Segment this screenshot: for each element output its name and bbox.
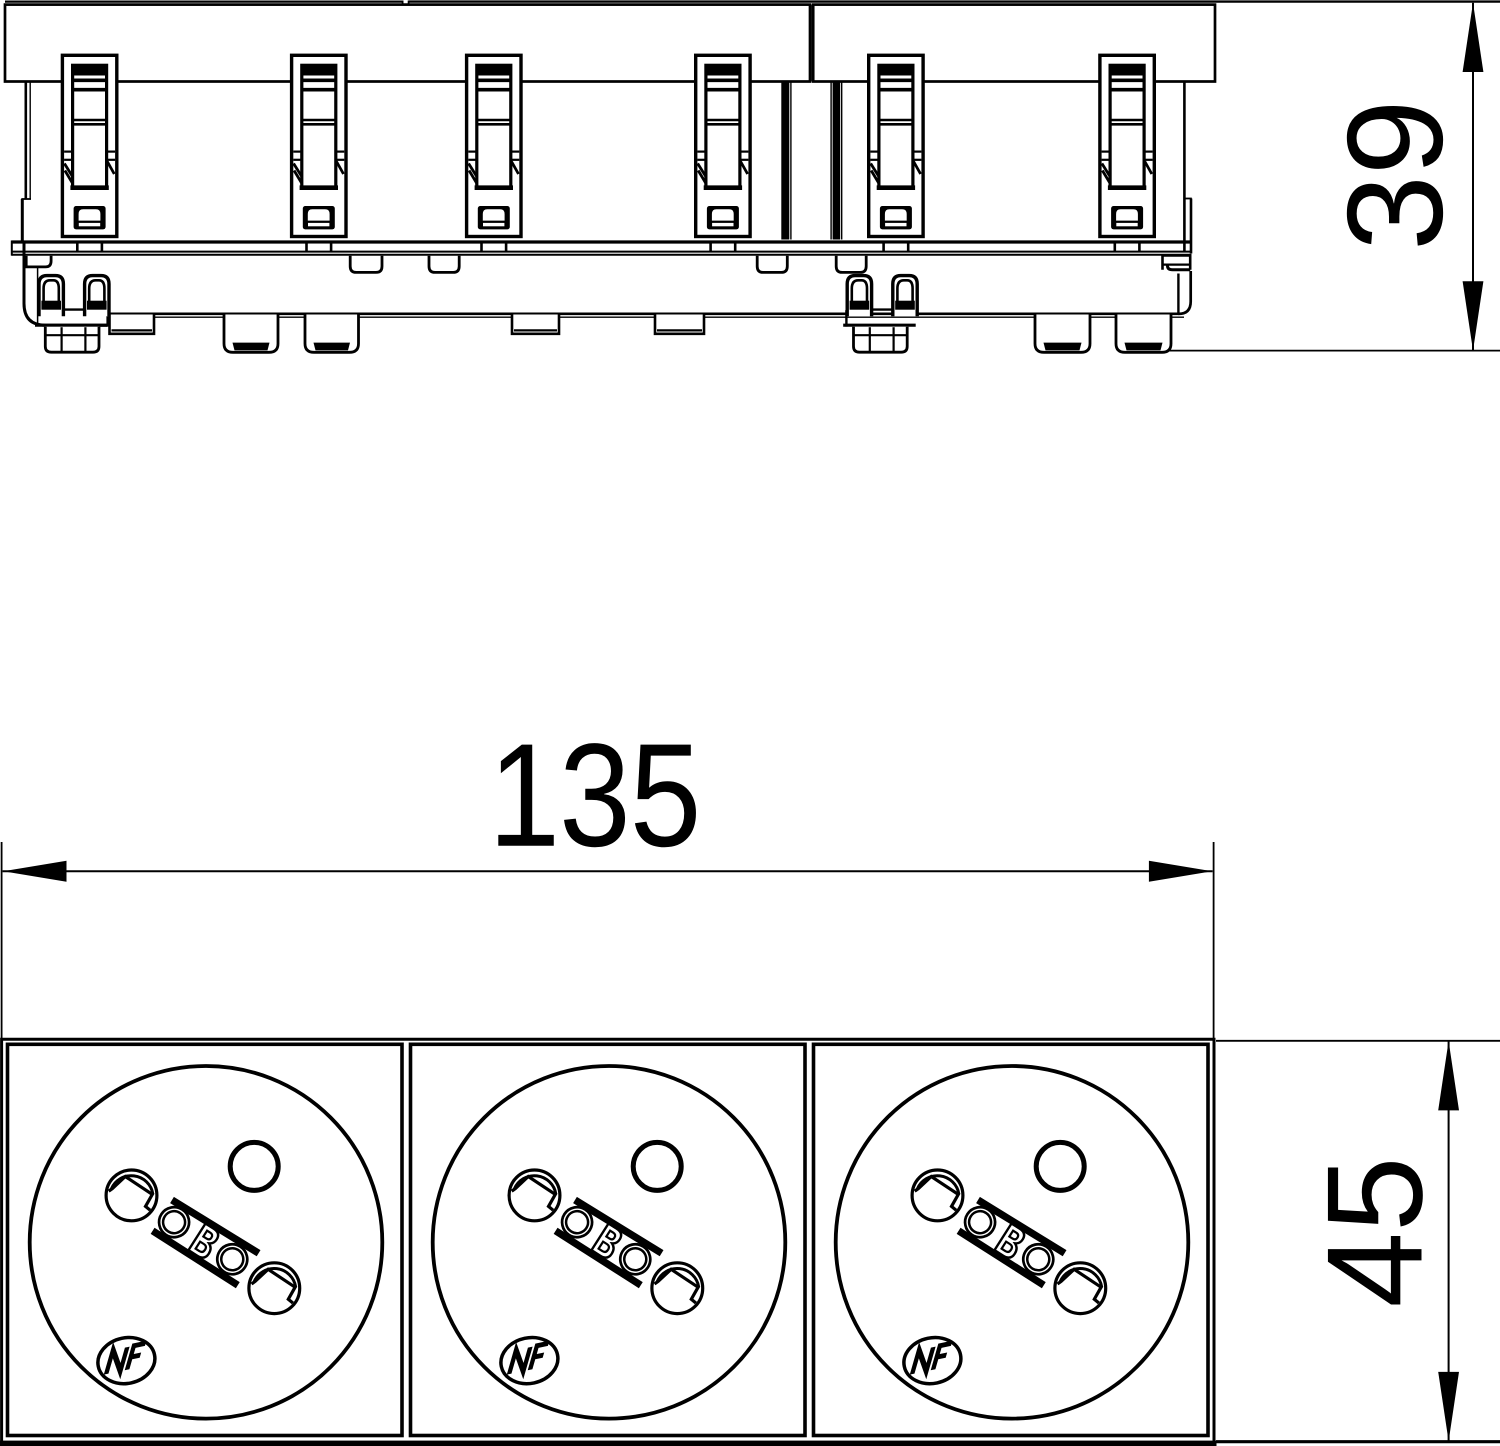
- svg-text:135: 135: [489, 714, 701, 878]
- svg-text:39: 39: [1319, 100, 1471, 251]
- svg-text:45: 45: [1299, 1156, 1451, 1307]
